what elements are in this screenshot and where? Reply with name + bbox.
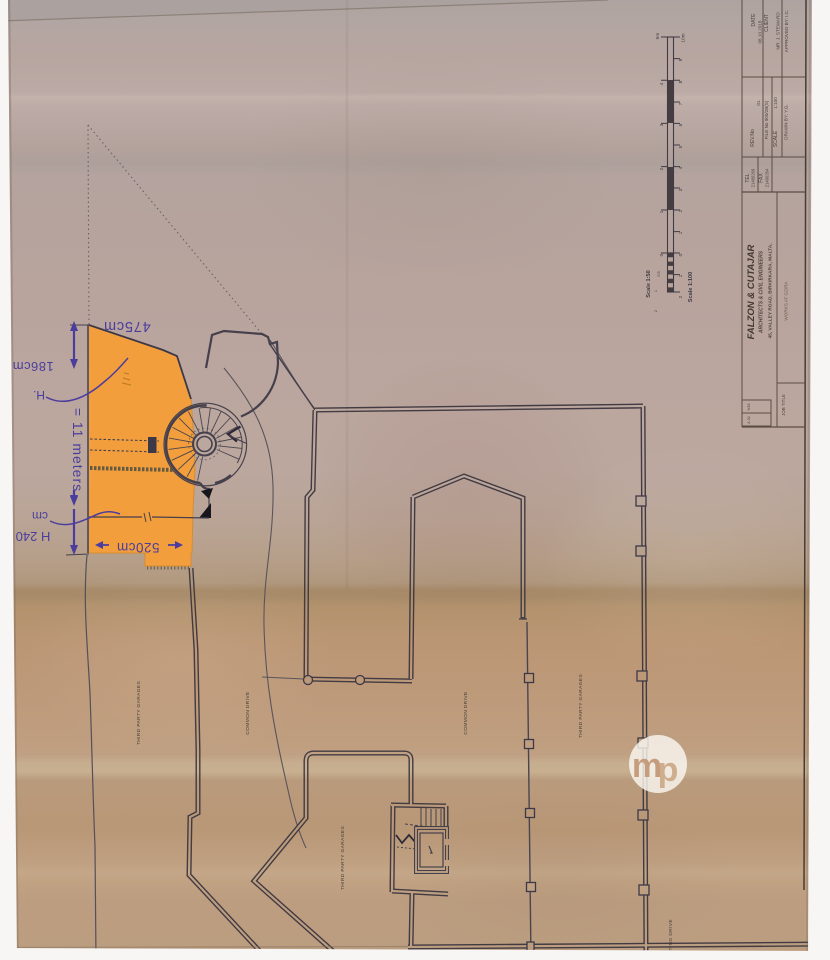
svg-text:COMMON DRIVE: COMMON DRIVE: [245, 691, 251, 734]
svg-text:ARCHITECTS & CIVIL ENGINEERS: ARCHITECTS & CIVIL ENGINEERS: [759, 250, 765, 334]
svg-text:THIRD PARTY GARAGES: THIRD PARTY GARAGES: [578, 674, 584, 738]
svg-text:H 240: H 240: [16, 529, 51, 544]
svg-text:2: 2: [678, 295, 684, 298]
svg-text:CLIENT: CLIENT: [764, 14, 770, 32]
svg-text:8: 8: [678, 80, 684, 83]
svg-text:= 11 meters: = 11 meters: [70, 408, 86, 492]
svg-text:45, VALLEY ROAD, BIRKIRKARA, M: 45, VALLEY ROAD, BIRKIRKARA, MALTA,: [768, 243, 774, 339]
svg-text:186cm: 186cm: [12, 359, 54, 374]
svg-text:THIRD PARTY GARAGES: THIRD PARTY GARAGES: [136, 681, 142, 745]
svg-text:1: 1: [659, 210, 665, 213]
svg-text:JOB TITLE: JOB TITLE: [781, 394, 786, 416]
svg-text:APPROVED BY: I.C.: APPROVED BY: I.C.: [784, 10, 789, 52]
svg-text:10m: 10m: [681, 33, 687, 42]
svg-text:475cm: 475cm: [103, 318, 151, 334]
svg-text:0.5: 0.5: [657, 271, 661, 276]
svg-text:3: 3: [678, 188, 684, 191]
svg-text:SCALE: SCALE: [773, 130, 779, 147]
svg-text:2: 2: [659, 167, 665, 170]
svg-text:DATE: DATE: [751, 13, 757, 27]
svg-text:21490264: 21490264: [765, 168, 770, 187]
svg-text:9: 9: [678, 58, 684, 61]
svg-text:DRAWN BY: Y.G.: DRAWN BY: Y.G.: [784, 104, 789, 139]
svg-text:6: 6: [678, 123, 684, 126]
svg-text:0: 0: [659, 253, 665, 256]
svg-text:2: 2: [654, 310, 658, 312]
svg-text:1: 1: [678, 274, 684, 277]
svg-text:0: 0: [678, 253, 684, 256]
svg-text:Scale 1:100: Scale 1:100: [688, 272, 694, 302]
svg-text:1: 1: [678, 231, 684, 234]
svg-text:MR. J. STEWARD: MR. J. STEWARD: [776, 12, 781, 50]
svg-text:1:100: 1:100: [773, 97, 778, 109]
svg-text:3: 3: [659, 123, 665, 126]
svg-text:1: 1: [654, 290, 658, 292]
svg-text:4: 4: [659, 82, 665, 85]
svg-text:9/18: 9/18: [747, 404, 751, 411]
svg-text:cm: cm: [32, 509, 48, 523]
svg-text:520cm: 520cm: [116, 540, 159, 555]
svg-text:H.: H.: [33, 388, 45, 402]
svg-text:4: 4: [678, 166, 684, 169]
svg-text:2: 2: [678, 209, 684, 212]
svg-text:REV.No: REV.No: [750, 129, 756, 147]
svg-text:THIRD PARTY GARAGES: THIRD PARTY GARAGES: [340, 826, 346, 890]
svg-text:21480269: 21480269: [751, 168, 756, 187]
svg-text:5: 5: [678, 145, 684, 148]
svg-text:01: 01: [756, 100, 761, 106]
svg-text:COMMON DRIVE: COMMON DRIVE: [463, 691, 469, 734]
svg-text:FALZON & CUTAJAR: FALZON & CUTAJAR: [746, 244, 757, 339]
svg-text:A.02: A.02: [747, 416, 751, 423]
svg-text:Scale 1:50: Scale 1:50: [646, 270, 652, 297]
svg-text:p: p: [658, 751, 679, 789]
svg-text:08.10.2018: 08.10.2018: [758, 20, 763, 43]
svg-text:7: 7: [678, 102, 684, 105]
svg-text:5m: 5m: [655, 33, 661, 40]
svg-text:FILE No 900/2B(S): FILE No 900/2B(S): [764, 100, 769, 139]
svg-text:WORKS AT GZIRA: WORKS AT GZIRA: [784, 280, 789, 320]
